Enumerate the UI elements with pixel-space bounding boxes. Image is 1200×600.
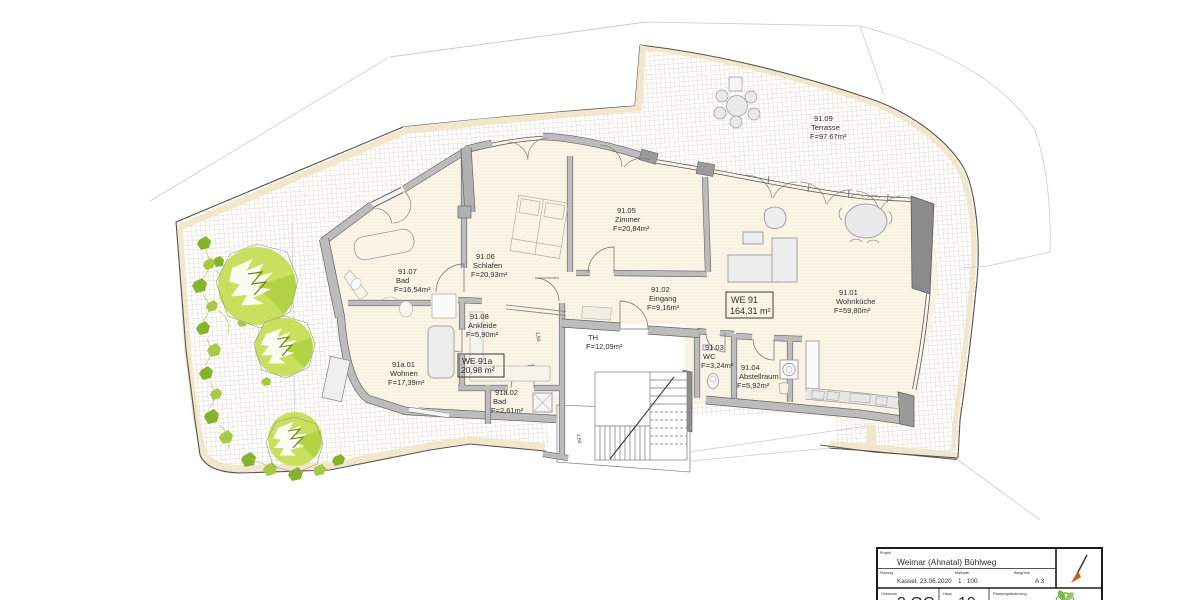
- svg-text:F=2,61m²: F=2,61m²: [491, 406, 524, 415]
- svg-text:TH: TH: [588, 333, 598, 342]
- svg-text:Haus:: Haus:: [943, 592, 952, 596]
- svg-text:Baugröße: Baugröße: [1014, 571, 1030, 575]
- svg-text:Terrasse: Terrasse: [811, 123, 840, 132]
- svg-text:164,31 m²: 164,31 m²: [730, 306, 771, 316]
- svg-text:Abstellraum: Abstellraum: [739, 372, 779, 381]
- svg-text:F=20,84m²: F=20,84m²: [613, 224, 650, 233]
- svg-text:Bad: Bad: [396, 276, 409, 285]
- svg-text:Wohnen: Wohnen: [390, 369, 418, 378]
- svg-text:Ankleide: Ankleide: [468, 321, 497, 330]
- svg-text:F=5,90m²: F=5,90m²: [466, 330, 499, 339]
- svg-text:91.05: 91.05: [617, 206, 636, 215]
- svg-text:3.OG: 3.OG: [897, 595, 935, 600]
- svg-text:F=97.67m²: F=97.67m²: [810, 132, 847, 141]
- svg-text:A 3: A 3: [1035, 578, 1045, 585]
- svg-text:Schlafen: Schlafen: [473, 261, 502, 270]
- svg-text:1,50: 1,50: [575, 434, 582, 445]
- svg-text:WC: WC: [703, 352, 716, 361]
- svg-text:91.03: 91.03: [705, 343, 724, 352]
- svg-text:91.06: 91.06: [476, 252, 495, 261]
- svg-text:Geschoss: Geschoss: [881, 592, 897, 596]
- svg-text:Projekt: Projekt: [880, 551, 891, 555]
- svg-text:91.07: 91.07: [398, 267, 417, 276]
- svg-text:91.04: 91.04: [741, 363, 760, 372]
- svg-text:19: 19: [958, 595, 976, 600]
- svg-text:1 : 100: 1 : 100: [958, 578, 978, 585]
- svg-text:Planungsänderung: Planungsänderung: [993, 591, 1027, 596]
- svg-text:Planung: Planung: [880, 571, 893, 575]
- svg-text:F=16,54m²: F=16,54m²: [394, 285, 431, 294]
- svg-text:Weimar (Ahnatal) Bühlweg: Weimar (Ahnatal) Bühlweg: [897, 557, 997, 567]
- svg-text:91.01: 91.01: [839, 288, 858, 297]
- svg-text:91a.02: 91a.02: [495, 388, 518, 397]
- svg-text:F=3,24m²: F=3,24m²: [701, 361, 734, 370]
- svg-text:F=5,92m²: F=5,92m²: [737, 381, 770, 390]
- svg-text:91.09: 91.09: [814, 114, 833, 123]
- svg-text:Maßstab: Maßstab: [955, 571, 969, 575]
- svg-text:Wohnküche: Wohnküche: [836, 297, 875, 306]
- svg-text:F=17,39m²: F=17,39m²: [388, 378, 425, 387]
- svg-text:F=59,80m²: F=59,80m²: [834, 306, 871, 315]
- svg-text:Bad: Bad: [493, 397, 506, 406]
- svg-text:Zimmer: Zimmer: [615, 215, 641, 224]
- svg-text:F=9,16m²: F=9,16m²: [647, 303, 680, 312]
- svg-text:WE 91: WE 91: [731, 295, 758, 305]
- svg-text:91.02: 91.02: [651, 285, 670, 294]
- svg-text:91a.01: 91a.01: [392, 360, 415, 369]
- svg-text:91.08: 91.08: [470, 312, 489, 321]
- svg-text:Kassel, 23.06.2020: Kassel, 23.06.2020: [897, 578, 952, 585]
- svg-text:Eingang: Eingang: [649, 294, 677, 303]
- svg-text:F=12,09m²: F=12,09m²: [586, 342, 623, 351]
- svg-text:1,50: 1,50: [534, 332, 541, 343]
- svg-text:F=20,93m²: F=20,93m²: [471, 270, 508, 279]
- svg-text:20,98 m²: 20,98 m²: [461, 365, 495, 375]
